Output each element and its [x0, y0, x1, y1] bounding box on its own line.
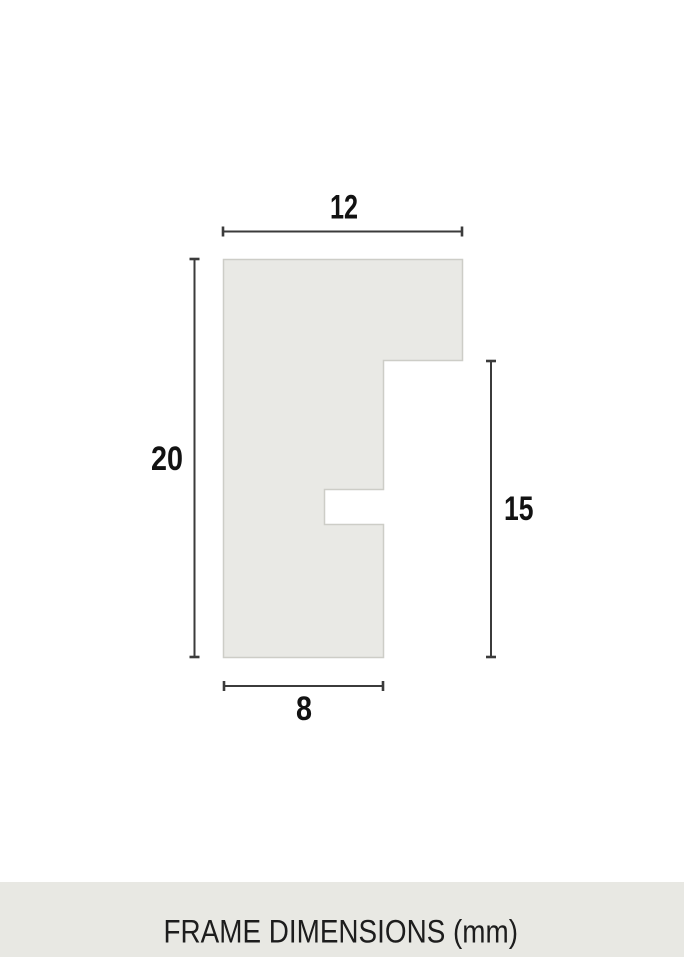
svg-text:12: 12 [330, 189, 358, 227]
svg-text:20: 20 [151, 440, 183, 478]
svg-text:8: 8 [296, 690, 312, 728]
svg-text:15: 15 [504, 490, 534, 528]
svg-text:FRAME DIMENSIONS (mm): FRAME DIMENSIONS (mm) [164, 914, 519, 950]
